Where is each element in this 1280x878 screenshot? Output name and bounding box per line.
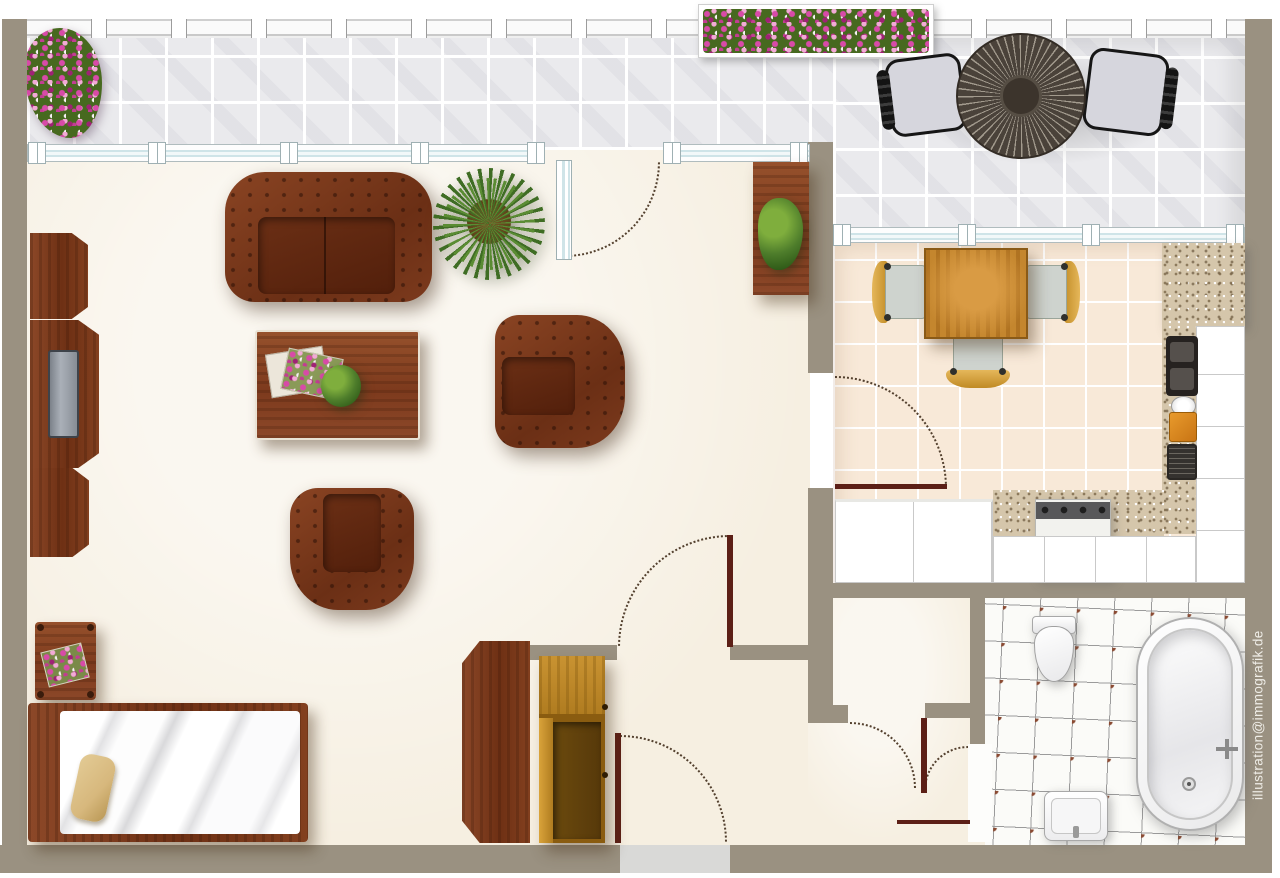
window-mullion xyxy=(1082,224,1100,246)
bistro-table xyxy=(956,33,1086,159)
chair-peg xyxy=(1061,263,1068,270)
window-mullion xyxy=(833,224,851,246)
flower-box-flowers xyxy=(703,9,929,53)
chair-peg xyxy=(999,368,1006,375)
cabinets-right xyxy=(1196,326,1245,583)
wall-left xyxy=(2,19,27,873)
chair-peg xyxy=(1061,314,1068,321)
coffee-table xyxy=(255,330,420,440)
dining-chair-right-seat xyxy=(1026,265,1067,319)
counter-right-top xyxy=(1162,243,1245,326)
wardrobe-handle xyxy=(602,772,608,778)
wall-foot xyxy=(808,705,848,723)
cabinets-bottom-right xyxy=(993,536,1196,583)
armchair-west-cushion xyxy=(502,357,575,415)
bed xyxy=(28,703,308,842)
wall-hall-top xyxy=(730,645,810,660)
tv-cabinet-top xyxy=(30,233,88,319)
window-mullion xyxy=(280,142,298,164)
armchair-west xyxy=(495,315,625,448)
dining-chair-left-seat xyxy=(885,265,926,319)
nightstand-knob xyxy=(87,624,94,631)
table-plant xyxy=(321,365,361,407)
armchair-north xyxy=(290,488,414,610)
window-mullion xyxy=(790,142,808,164)
wall-hall-stub xyxy=(925,703,972,718)
wall-kitchen-bath xyxy=(808,583,1245,598)
balcony-railing xyxy=(27,19,1245,38)
washbasin xyxy=(1044,791,1108,841)
bath-doorway-floor xyxy=(968,744,992,842)
sofa xyxy=(225,172,432,302)
sink-basin xyxy=(1170,342,1194,362)
flower-box xyxy=(698,4,934,58)
floor-plan: illustration@immografik.de xyxy=(0,0,1280,878)
wardrobe-open-side xyxy=(539,718,553,843)
window-mullion xyxy=(527,142,545,164)
wall-living-kitchen-upper xyxy=(808,142,833,373)
kitchen-sink xyxy=(1166,336,1198,396)
entry-landing xyxy=(620,845,730,873)
tv-screen xyxy=(48,350,79,438)
nightstand-knob xyxy=(37,691,44,698)
chair-peg xyxy=(884,263,891,270)
dining-table xyxy=(924,248,1028,339)
sideboard xyxy=(753,162,809,295)
watermark-text: illustration@immografik.de xyxy=(1243,578,1273,852)
window-living-2 xyxy=(663,144,810,162)
wall-bath-left xyxy=(970,598,985,744)
bathtub-faucet-stem xyxy=(1225,739,1229,759)
nightstand-magazine xyxy=(40,642,89,687)
bistro-chair-right xyxy=(1081,46,1170,137)
cutting-board xyxy=(1169,412,1197,442)
sofa-cushions xyxy=(258,217,395,294)
yucca-plant xyxy=(433,168,545,280)
bistro-table-center xyxy=(1000,75,1043,116)
drain-dot xyxy=(1187,782,1191,786)
stove-knob-row xyxy=(1036,502,1110,519)
window-mullion xyxy=(28,142,46,164)
hall-threshold-panel xyxy=(897,820,970,824)
wardrobe-open xyxy=(539,656,605,843)
washbasin-tap xyxy=(1073,826,1079,838)
wardrobe-closed xyxy=(462,641,530,843)
nightstand xyxy=(35,622,96,700)
dining-chair-left xyxy=(872,261,926,323)
wardrobe-handle xyxy=(602,704,608,710)
window-mullion xyxy=(411,142,429,164)
wardrobe-open-interior xyxy=(553,722,601,839)
bathroom-door-panel xyxy=(921,718,927,793)
wall-bottom-right xyxy=(730,845,1272,873)
bathtub xyxy=(1136,617,1244,831)
window-kitchen xyxy=(833,227,1245,243)
toilet-bowl xyxy=(1034,626,1074,682)
tv-cabinet-middle xyxy=(30,320,99,468)
sink-basin xyxy=(1170,368,1194,390)
wardrobe-open-top-shelf xyxy=(539,656,605,718)
window-mullion xyxy=(148,142,166,164)
cabinets-bottom-left xyxy=(835,499,993,583)
chair-peg xyxy=(950,368,957,375)
living-hall-door-panel xyxy=(727,535,733,647)
nightstand-knob xyxy=(87,691,94,698)
kitchen-door-panel xyxy=(835,484,947,489)
bathtub-inner xyxy=(1147,628,1233,820)
nightstand-knob xyxy=(37,624,44,631)
bathtub-drain xyxy=(1182,777,1196,791)
armchair-north-cushion xyxy=(323,494,381,572)
window-mullion xyxy=(958,224,976,246)
dining-chair-right xyxy=(1026,261,1080,323)
wall-living-kitchen-lower xyxy=(808,488,833,723)
sideboard-plant xyxy=(758,198,803,270)
entry-door-panel xyxy=(615,733,621,843)
chair-peg xyxy=(884,314,891,321)
grill xyxy=(1167,444,1197,480)
yucca-leaves-2 xyxy=(443,178,535,270)
window-mullion xyxy=(663,142,681,164)
wall-bottom-left xyxy=(0,845,620,873)
toilet xyxy=(1030,616,1078,684)
tv-cabinet-bottom xyxy=(30,468,89,557)
balcony-glass-door xyxy=(556,160,572,260)
